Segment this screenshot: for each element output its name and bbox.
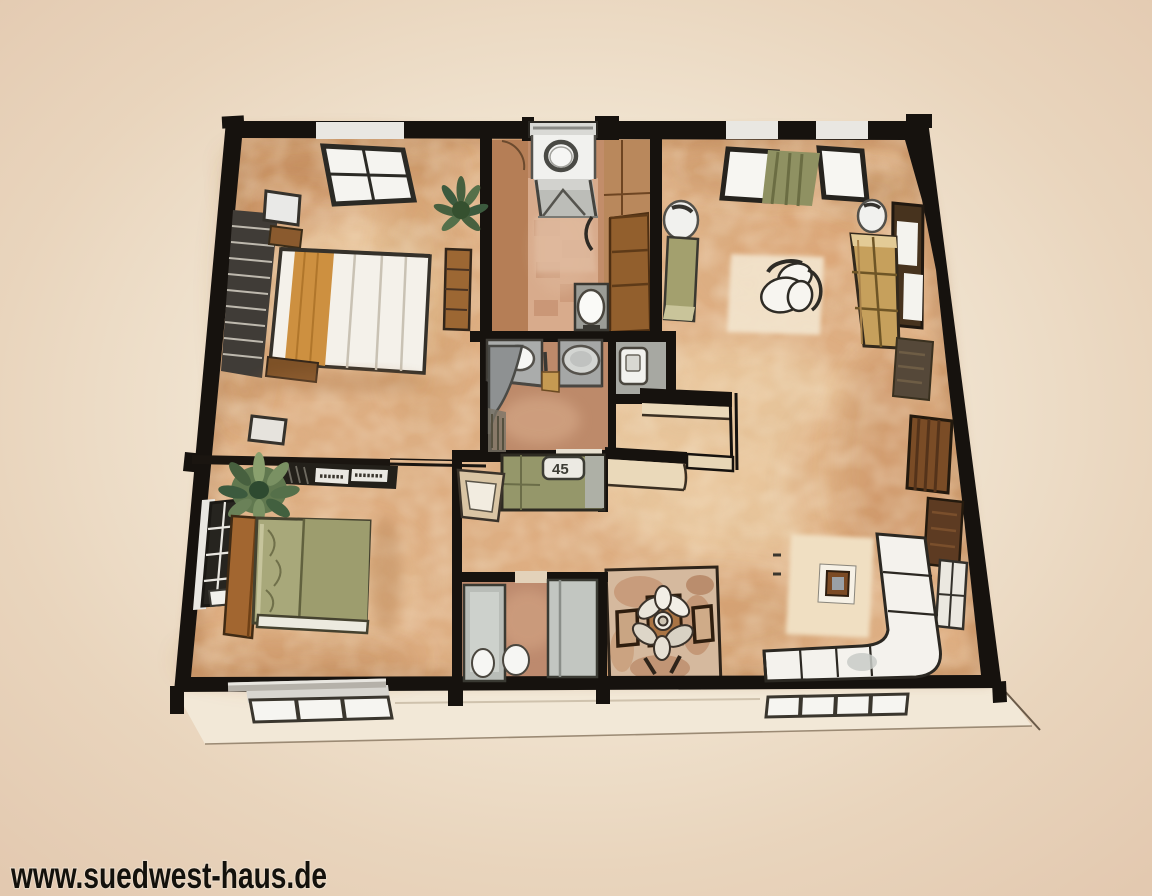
svg-text:45: 45	[552, 461, 569, 478]
svg-text:www.suedwest-haus.de: www.suedwest-haus.de	[10, 855, 327, 896]
